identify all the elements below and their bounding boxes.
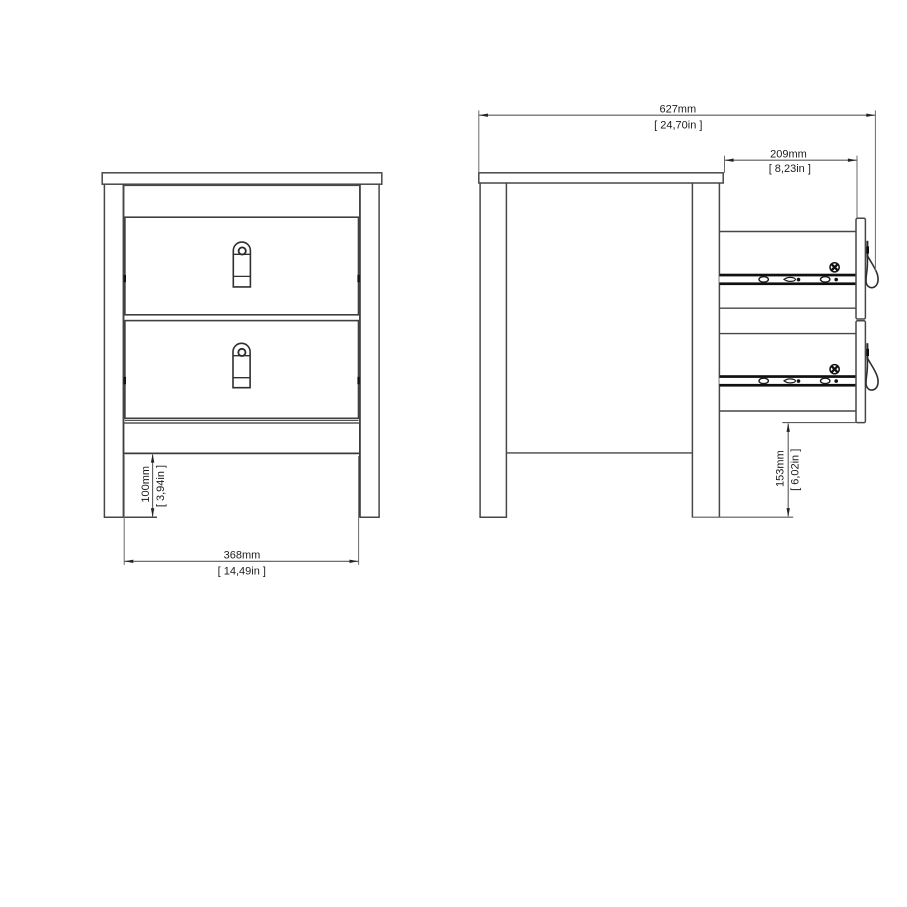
svg-text:153mm: 153mm	[775, 450, 787, 487]
svg-text:209mm: 209mm	[770, 149, 807, 161]
svg-text:[ 8,23in ]: [ 8,23in ]	[769, 163, 811, 175]
svg-text:[ 3,94in ]: [ 3,94in ]	[155, 465, 167, 507]
svg-text:100mm: 100mm	[140, 466, 152, 503]
svg-text:[ 6,02in ]: [ 6,02in ]	[789, 449, 801, 491]
svg-text:368mm: 368mm	[224, 549, 261, 561]
svg-text:[ 24,70in ]: [ 24,70in ]	[654, 119, 702, 131]
svg-text:[ 14,49in ]: [ 14,49in ]	[218, 565, 266, 577]
svg-text:627mm: 627mm	[659, 103, 696, 115]
